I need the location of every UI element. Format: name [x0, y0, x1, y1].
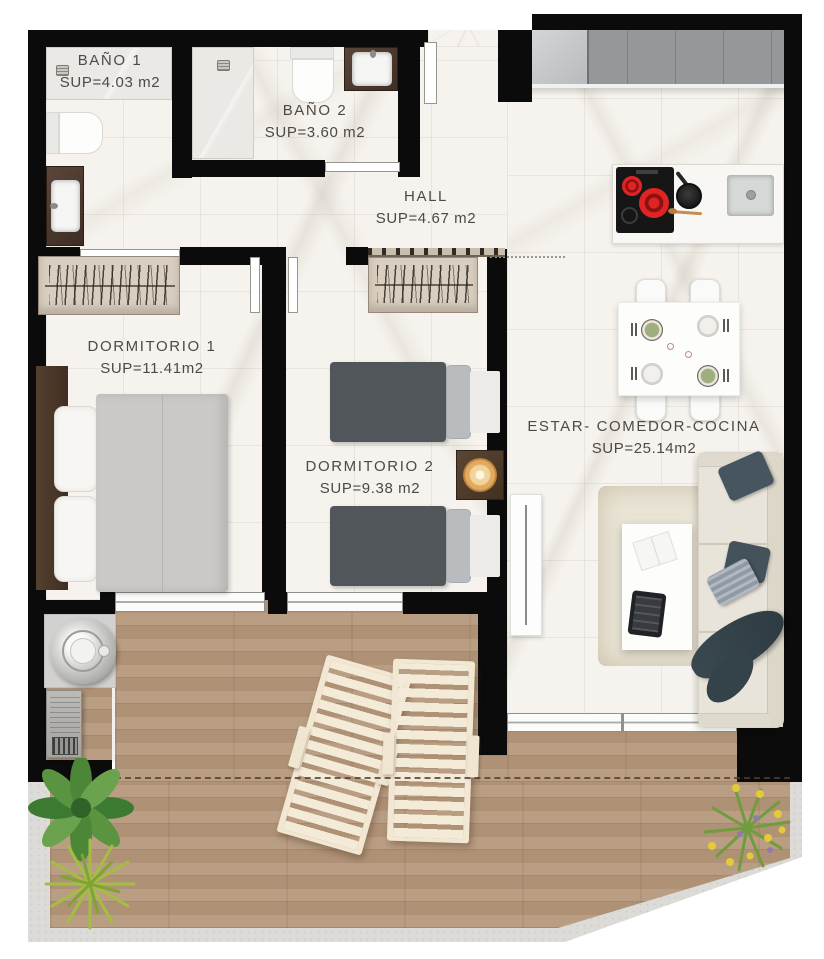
- wall-dorm-divider: [262, 247, 286, 600]
- ac-grille: [52, 737, 78, 755]
- hangers-icon: [49, 265, 171, 305]
- room-area: SUP=9.38 m2: [304, 478, 436, 500]
- cutlery-icon: [635, 323, 637, 336]
- heater-valve: [98, 645, 110, 657]
- faucet-icon: [50, 203, 58, 209]
- wall-bano2-right: [398, 47, 420, 177]
- terrace-boundary-dashed-line: [115, 777, 790, 779]
- dorm1-bed-duvet: [96, 394, 228, 592]
- room-area: SUP=3.60 m2: [250, 122, 380, 144]
- plate-white: [697, 315, 719, 337]
- cutlery-icon: [723, 319, 725, 332]
- bano2-toilet: [292, 59, 334, 103]
- wall-panel-radiator: [510, 494, 542, 636]
- dorm2-bed1-duvet: [330, 362, 446, 442]
- room-label-estar: ESTAR- COMEDOR-COCINA SUP=25.14m2: [524, 416, 764, 460]
- bano2-sink: [352, 52, 392, 86]
- plate-white: [641, 363, 663, 385]
- burner-small-red: [622, 176, 642, 196]
- pan-body: [676, 183, 702, 209]
- bano1-toilet: [59, 112, 103, 154]
- room-name: DORMITORIO 2: [304, 456, 436, 478]
- terrace-deck-living: [507, 732, 737, 782]
- room-name: ESTAR- COMEDOR-COCINA: [524, 416, 764, 438]
- room-label-bano1: BAÑO 1 SUP=4.03 m2: [48, 50, 172, 94]
- terrace-pillar: [478, 592, 507, 755]
- tablet: [627, 590, 666, 638]
- cooktop: [616, 167, 674, 233]
- room-name: BAÑO 1: [48, 50, 172, 72]
- room-name: HALL: [362, 186, 490, 208]
- dorm2-bed1-sheet: [470, 371, 500, 433]
- coat-hooks: [368, 248, 505, 257]
- sun-lounger: [387, 659, 475, 844]
- dorm1-window: [115, 592, 265, 612]
- cutlery-icon: [727, 369, 729, 382]
- wall-entrance-right: [498, 30, 532, 102]
- burner-ring-dark: [621, 207, 638, 224]
- room-label-hall: HALL SUP=4.67 m2: [362, 186, 490, 230]
- bano2-shower-tray: [192, 47, 254, 159]
- plate-green: [697, 365, 719, 387]
- room-area: SUP=4.03 m2: [48, 72, 172, 94]
- entrance-door: [424, 42, 437, 104]
- wall-between-windows: [268, 592, 287, 614]
- shower-drain-icon: [217, 60, 230, 71]
- wall-bano1-right: [172, 47, 192, 178]
- apartment-floor-plan: BAÑO 1 SUP=4.03 m2 BAÑO 2 SUP=3.60 m2 HA…: [0, 0, 824, 959]
- cooktop-controls: [636, 170, 658, 174]
- window-divider: [621, 714, 624, 731]
- dorm2-bed2-sheet: [470, 515, 500, 577]
- dorm2-wardrobe: [368, 257, 478, 313]
- plant-flowering: [690, 776, 805, 882]
- dorm2-door: [288, 257, 298, 313]
- dorm1-pillow: [54, 496, 98, 582]
- wall-top-left: [28, 30, 428, 47]
- floor-entrance-patch: [428, 30, 498, 47]
- wall-dorm2-top: [346, 247, 368, 265]
- faucet-icon: [370, 50, 376, 58]
- burner-large-red: [639, 188, 669, 218]
- bano1-sink: [51, 180, 80, 232]
- room-area: SUP=4.67 m2: [362, 208, 490, 230]
- cup: [685, 351, 692, 358]
- dorm1-door: [250, 257, 260, 313]
- bano2-sliding-door: [325, 162, 400, 172]
- cup: [667, 343, 674, 350]
- room-name: BAÑO 2: [250, 100, 380, 122]
- wall-bano2-bottom: [192, 160, 325, 177]
- sink-drain: [746, 190, 756, 200]
- sofa-backrest: [767, 453, 783, 727]
- dorm2-window: [287, 592, 403, 612]
- room-label-dormitorio2: DORMITORIO 2 SUP=9.38 m2: [304, 456, 436, 500]
- bano1-toilet-tank: [46, 112, 59, 154]
- water-heater: [50, 618, 116, 684]
- cutlery-icon: [727, 319, 729, 332]
- book: [632, 531, 677, 571]
- room-area: SUP=25.14m2: [524, 438, 764, 460]
- dining-table: [618, 302, 740, 396]
- table-lamp: [463, 458, 497, 492]
- hangers-icon: [377, 265, 471, 303]
- room-name: DORMITORIO 1: [86, 336, 218, 358]
- room-label-dormitorio1: DORMITORIO 1 SUP=11.41m2: [86, 336, 218, 380]
- kitchen-sink: [727, 175, 774, 216]
- room-area: SUP=11.41m2: [86, 358, 218, 380]
- dorm2-bed2-pillow: [446, 509, 471, 583]
- wall-dorm2-window-right: [403, 592, 487, 614]
- kitchen-cabinets: [532, 30, 784, 88]
- ac-unit: [46, 690, 82, 758]
- cutlery-icon: [635, 367, 637, 380]
- room-label-bano2: BAÑO 2 SUP=3.60 m2: [250, 100, 380, 144]
- cabinet-shadow: [532, 88, 784, 96]
- wall-right: [784, 14, 802, 782]
- kitchen-cabinet-panel: [532, 30, 589, 88]
- plant-spiky: [34, 834, 146, 938]
- cutlery-icon: [723, 369, 725, 382]
- dorm2-bed2-duvet: [330, 506, 446, 586]
- bano2-toilet-tank: [290, 47, 334, 59]
- cutlery-icon: [631, 323, 633, 336]
- dorm1-pillow: [54, 406, 98, 492]
- dorm1-wardrobe: [38, 256, 180, 315]
- cutlery-icon: [631, 367, 633, 380]
- coffee-table: [622, 524, 692, 650]
- dorm2-bed1-pillow: [446, 365, 471, 439]
- plate-green: [641, 319, 663, 341]
- wall-kitchen-top: [532, 14, 802, 30]
